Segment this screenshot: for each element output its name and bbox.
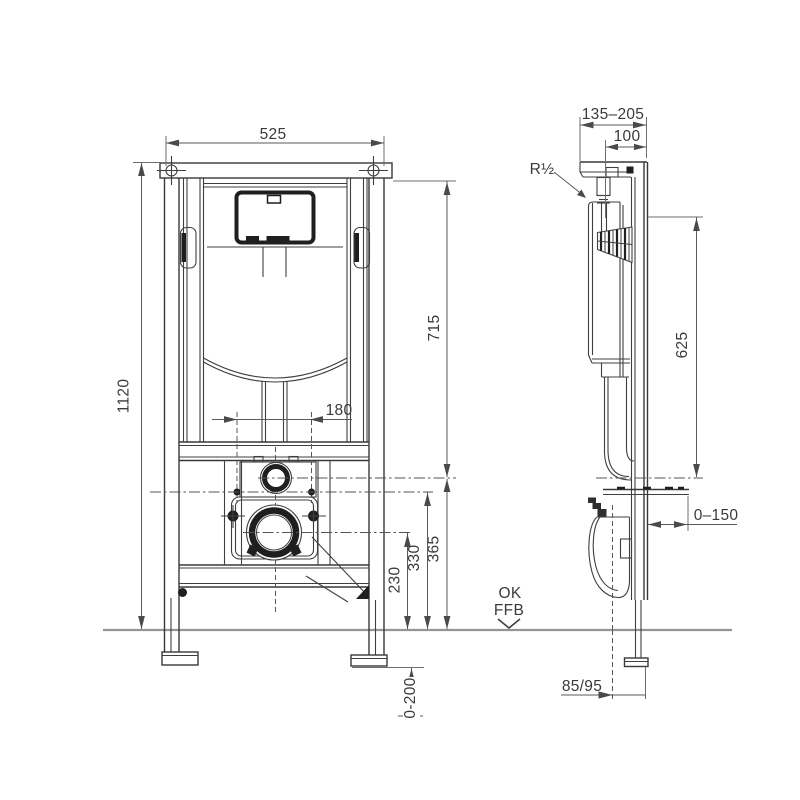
dim-height-230: 230 xyxy=(387,533,411,629)
label-r-half: R½ xyxy=(530,161,555,178)
mounting-hole-left xyxy=(157,156,186,185)
wc-frame-drawing: 525 1120 715 365 330 230 xyxy=(0,0,800,800)
technical-drawing-canvas: 525 1120 715 365 330 230 xyxy=(0,0,800,800)
window-bottom-tab-left xyxy=(246,236,259,242)
foot-right xyxy=(351,655,387,666)
lower-crossbar xyxy=(179,565,369,587)
diagonal-brace xyxy=(306,537,369,602)
dim-label-180: 180 xyxy=(326,402,353,419)
side-view xyxy=(580,162,703,667)
dim-label-330: 330 xyxy=(406,545,423,572)
dim-depth-100: 100 xyxy=(606,128,647,218)
dim-height-1120: 1120 xyxy=(116,163,163,630)
front-view xyxy=(150,156,456,666)
dim-width-525: 525 xyxy=(166,126,384,166)
leg-clamp-screw xyxy=(178,588,187,597)
dim-625: 625 xyxy=(648,217,703,477)
top-rail xyxy=(160,163,392,178)
right-rail xyxy=(369,178,384,655)
water-supply-fitting xyxy=(597,178,610,233)
dim-label-365: 365 xyxy=(426,536,443,563)
window-bottom-tab-right xyxy=(267,236,290,242)
dim-label-625: 625 xyxy=(674,332,691,359)
dim-label-230: 230 xyxy=(387,567,404,594)
flush-pipe-side xyxy=(605,377,635,480)
floor-label-ffb: FFB xyxy=(494,602,524,619)
dim-label-715: 715 xyxy=(426,315,443,342)
adjustment-rack xyxy=(598,227,633,263)
water-connection-label: R½ xyxy=(530,161,586,198)
pan-bracket xyxy=(588,498,607,517)
dim-label-525: 525 xyxy=(260,126,287,143)
upper-crossbar xyxy=(179,442,369,461)
centerlines-front xyxy=(150,478,456,533)
window-top-notch xyxy=(268,196,281,204)
foot-left xyxy=(162,652,198,665)
dim-foot-adjust: 0-200 xyxy=(352,668,424,721)
dim-outlet-offset: 85/95 xyxy=(561,630,646,699)
drain-bend-side xyxy=(589,517,632,598)
wall-bracket xyxy=(580,162,647,177)
side-clip-left xyxy=(181,228,197,269)
dim-label-135-205: 135–205 xyxy=(582,106,644,123)
flush-plate-window xyxy=(237,193,314,243)
dim-label-1120: 1120 xyxy=(116,379,133,414)
floor-level-marker: OK FFB xyxy=(494,585,524,628)
left-rail xyxy=(165,178,180,652)
drain-outlet xyxy=(247,505,302,560)
mounting-plate xyxy=(603,488,689,495)
floor-chevron-icon xyxy=(498,619,520,628)
dim-bolt-spacing-180: 180 xyxy=(212,402,352,423)
dim-label-100: 100 xyxy=(614,128,641,145)
dim-height-715: 715 xyxy=(393,181,456,477)
dim-label-0-150: 0–150 xyxy=(694,507,739,524)
dim-wall-distance: 0–150 xyxy=(648,496,738,531)
dim-height-330: 330 xyxy=(406,492,431,629)
floor-label-ok: OK xyxy=(499,585,522,602)
dim-label-0-200: 0-200 xyxy=(402,677,419,718)
dim-label-85-95: 85/95 xyxy=(562,678,602,695)
